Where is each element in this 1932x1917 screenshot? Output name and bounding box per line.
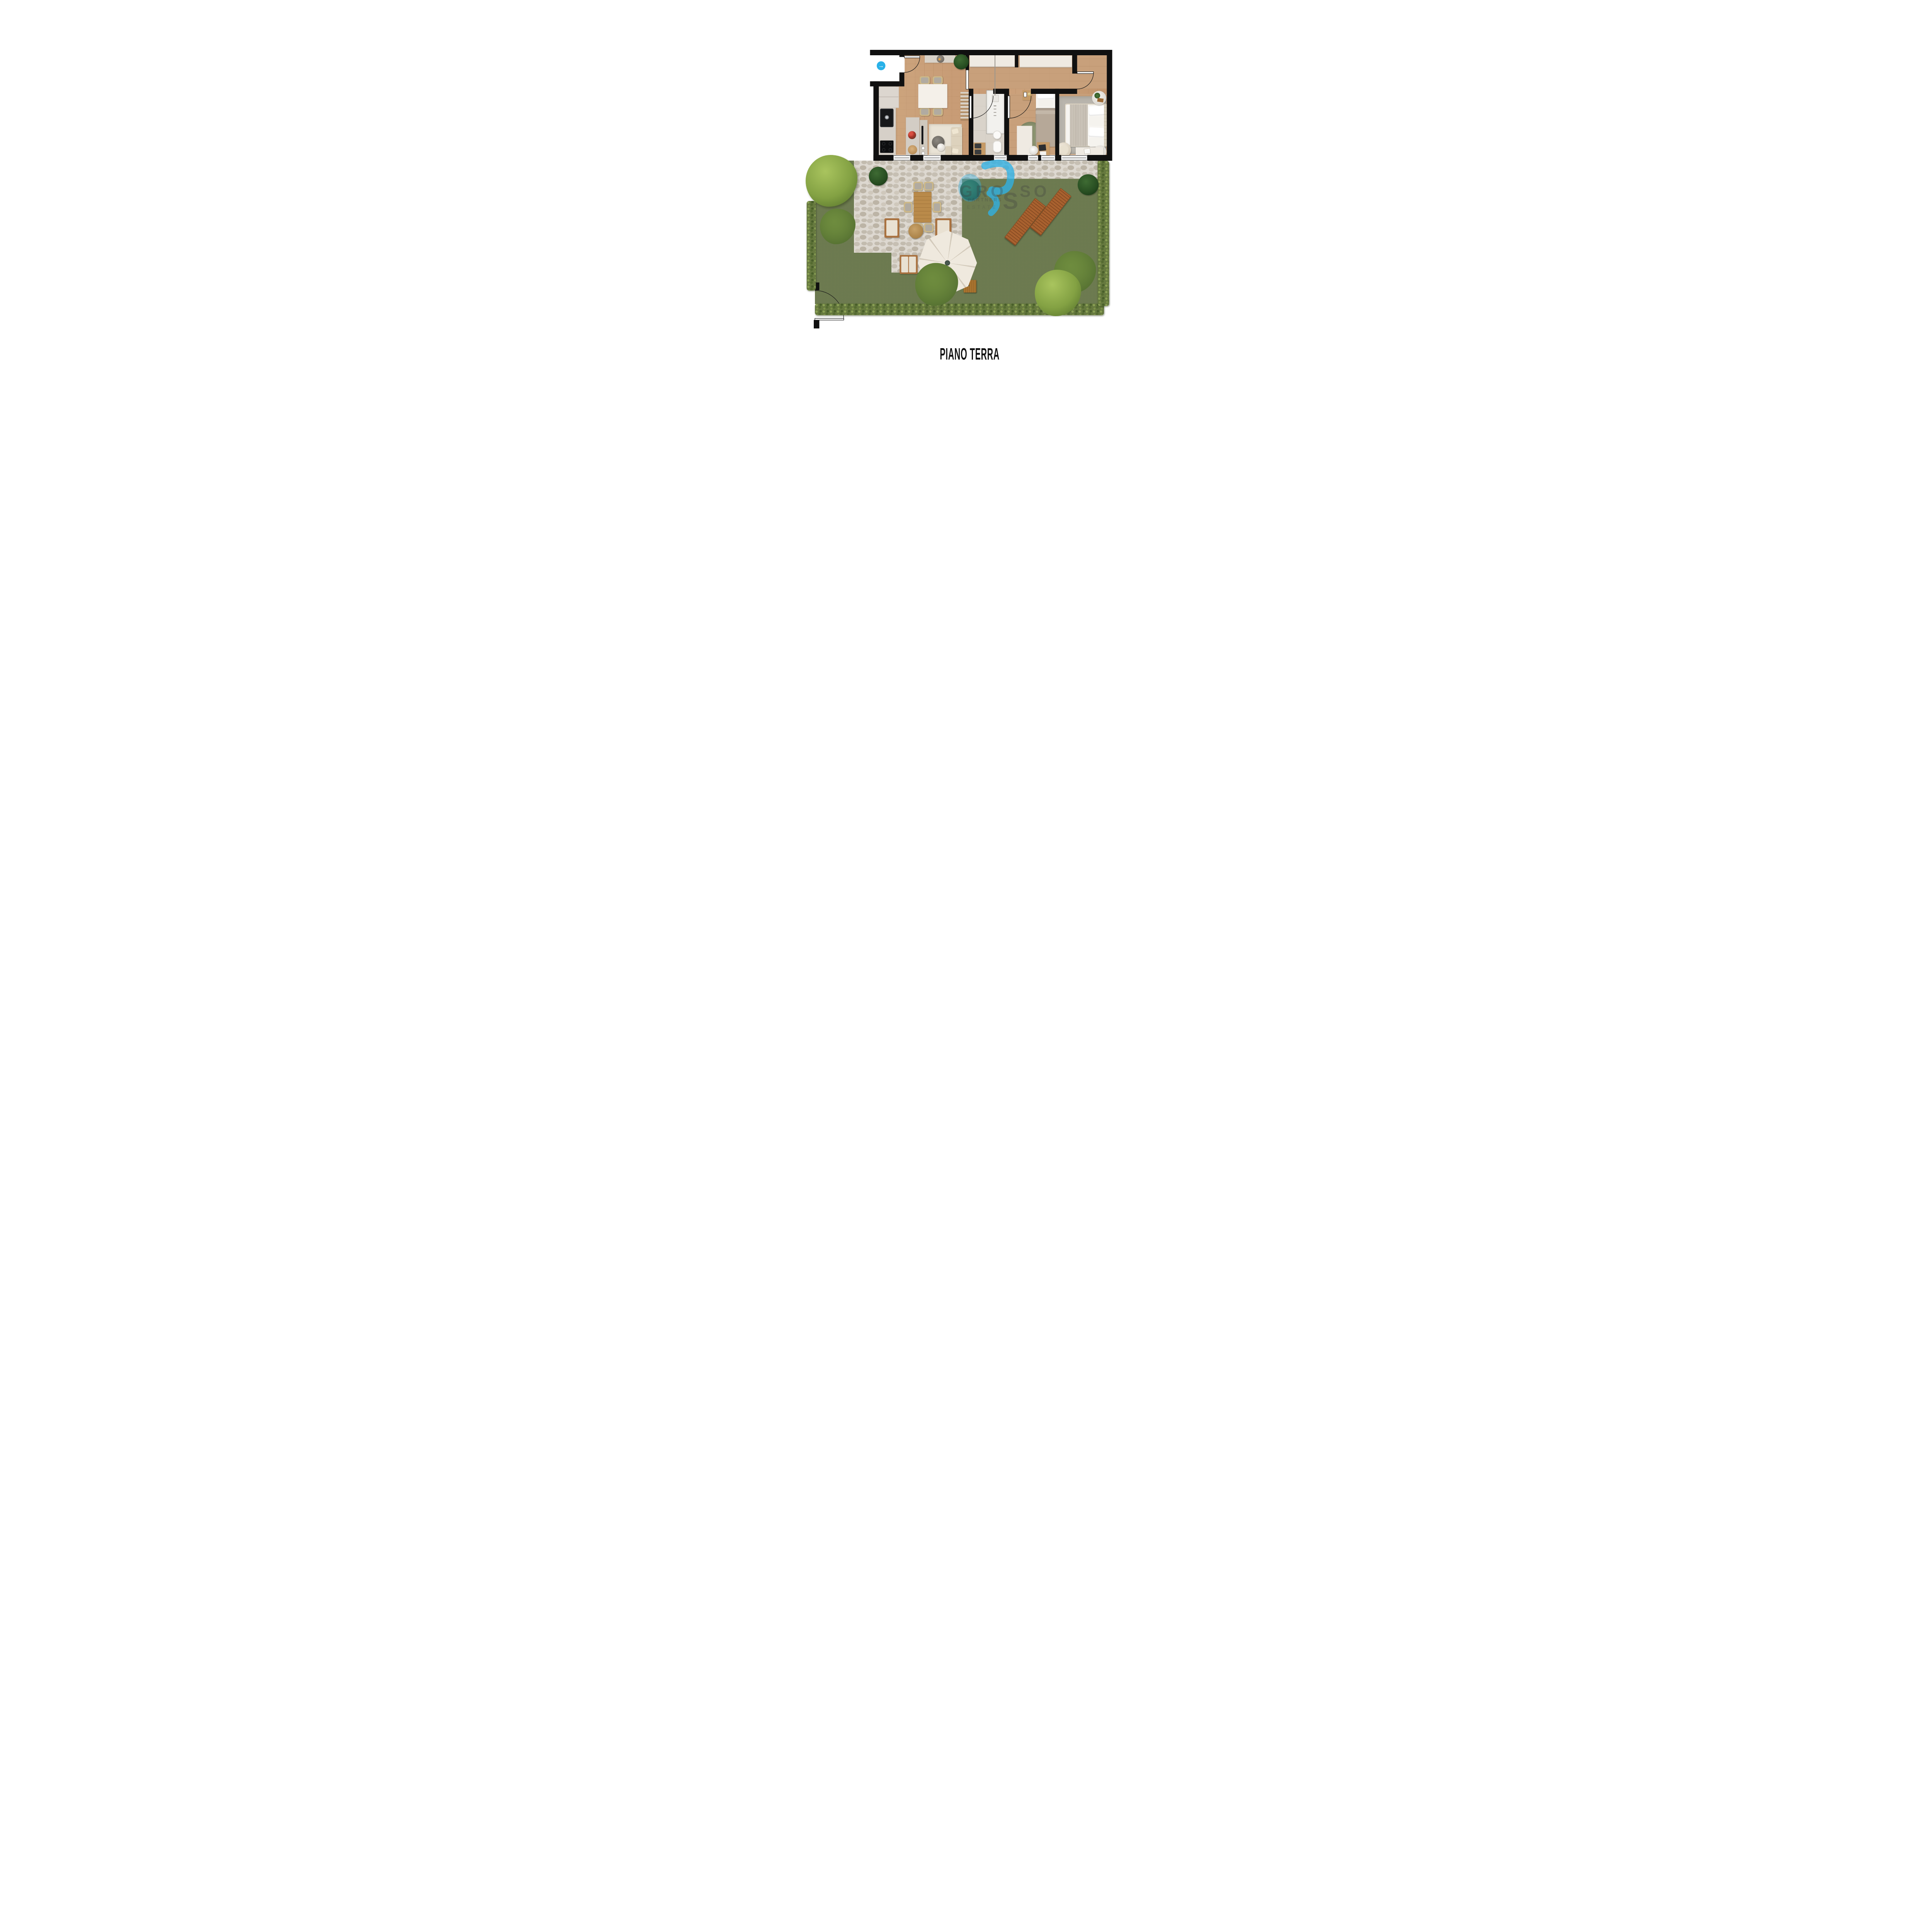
watermark-tagline: & PARTNERS: [961, 197, 1003, 202]
watermark-brand-s: S: [1003, 187, 1018, 214]
floorplan-viewport: → GRO S SO & PARTNERS ESTATE: [695, 0, 1237, 383]
watermark-subline: ESTATE: [967, 205, 998, 210]
watermark-brand: SO: [1020, 182, 1050, 201]
floorplan-stage: → GRO S SO & PARTNERS ESTATE: [695, 0, 1237, 383]
page-title: PIANO TERRA: [940, 344, 1000, 364]
